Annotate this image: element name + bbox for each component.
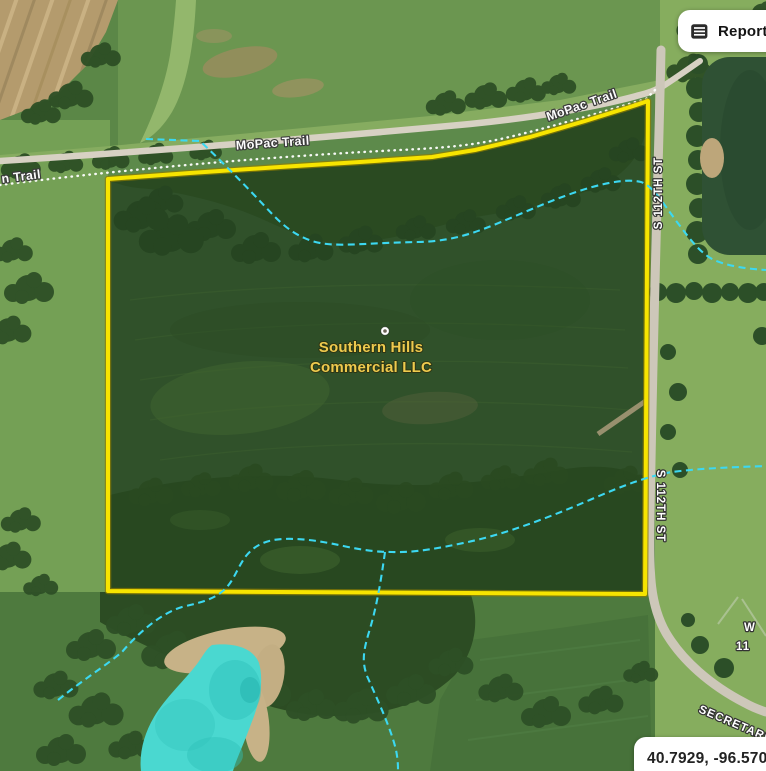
street-label-112th-upper: S 112TH ST bbox=[653, 157, 665, 230]
reports-button[interactable]: Reports bbox=[678, 10, 766, 52]
map-viewport[interactable]: n Trail MoPac Trail MoPac Trail S 112TH … bbox=[0, 0, 766, 771]
coordinate-readout: 40.7929, -96.5703 bbox=[634, 737, 766, 771]
pond-northeast bbox=[700, 57, 766, 255]
reports-button-label: Reports bbox=[718, 23, 766, 40]
street-label-112th-lower: S 112TH ST bbox=[654, 470, 666, 543]
parcel-name-line2: Commercial LLC bbox=[310, 359, 432, 376]
satellite-map: n Trail MoPac Trail MoPac Trail S 112TH … bbox=[0, 0, 766, 771]
edge-partial-label-11: 11 bbox=[736, 641, 750, 653]
edge-partial-label-w: W bbox=[744, 622, 756, 634]
parcel-marker-pin[interactable] bbox=[381, 327, 389, 335]
parcel-name-line1: Southern Hills bbox=[319, 339, 423, 356]
report-document-icon bbox=[690, 22, 709, 41]
